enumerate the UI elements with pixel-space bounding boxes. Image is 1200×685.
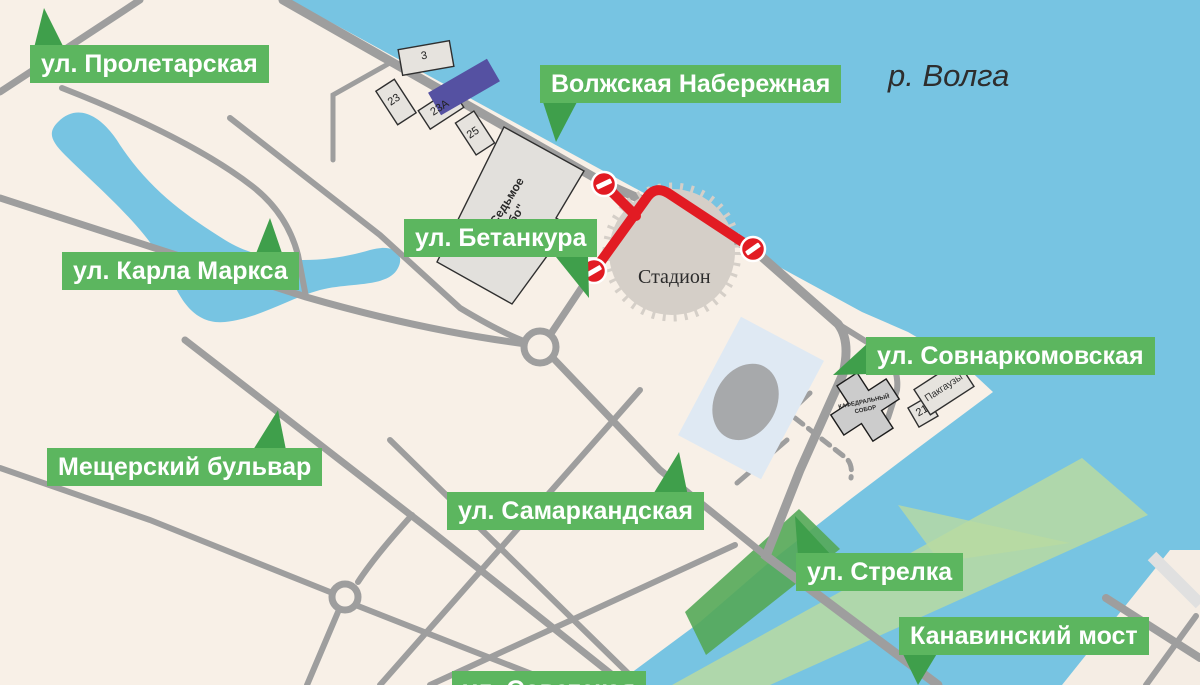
street-label-sovnarkomovskaya: ул. Совнаркомовская xyxy=(866,337,1155,375)
street-label-kanavinsky: Канавинский мост xyxy=(899,617,1149,655)
street-label-betankura: ул. Бетанкура xyxy=(404,219,597,257)
street-label-proletarskaya: ул. Пролетарская xyxy=(30,45,269,83)
no-entry-sign-2 xyxy=(741,237,765,261)
street-label-meshchersky: Мещерский бульвар xyxy=(47,448,322,486)
no-entry-sign-1 xyxy=(592,172,616,196)
street-label-strelka: ул. Стрелка xyxy=(796,553,963,591)
roundabout-meshchersky xyxy=(332,584,358,610)
street-label-samarkandskaya: ул. Самаркандская xyxy=(447,492,704,530)
street-label-volzhskaya: Волжская Набережная xyxy=(540,65,841,103)
roundabout-betankura xyxy=(524,331,556,363)
street-label-sovetskaya: ул. Советская xyxy=(452,671,646,685)
stadium-label: Стадион xyxy=(638,266,711,289)
map-canvas: ул. Пролетарская Волжская Набережная ул.… xyxy=(0,0,1200,685)
river-volga-label: р. Волга xyxy=(888,58,1009,94)
street-label-karla-marksa: ул. Карла Маркса xyxy=(62,252,299,290)
